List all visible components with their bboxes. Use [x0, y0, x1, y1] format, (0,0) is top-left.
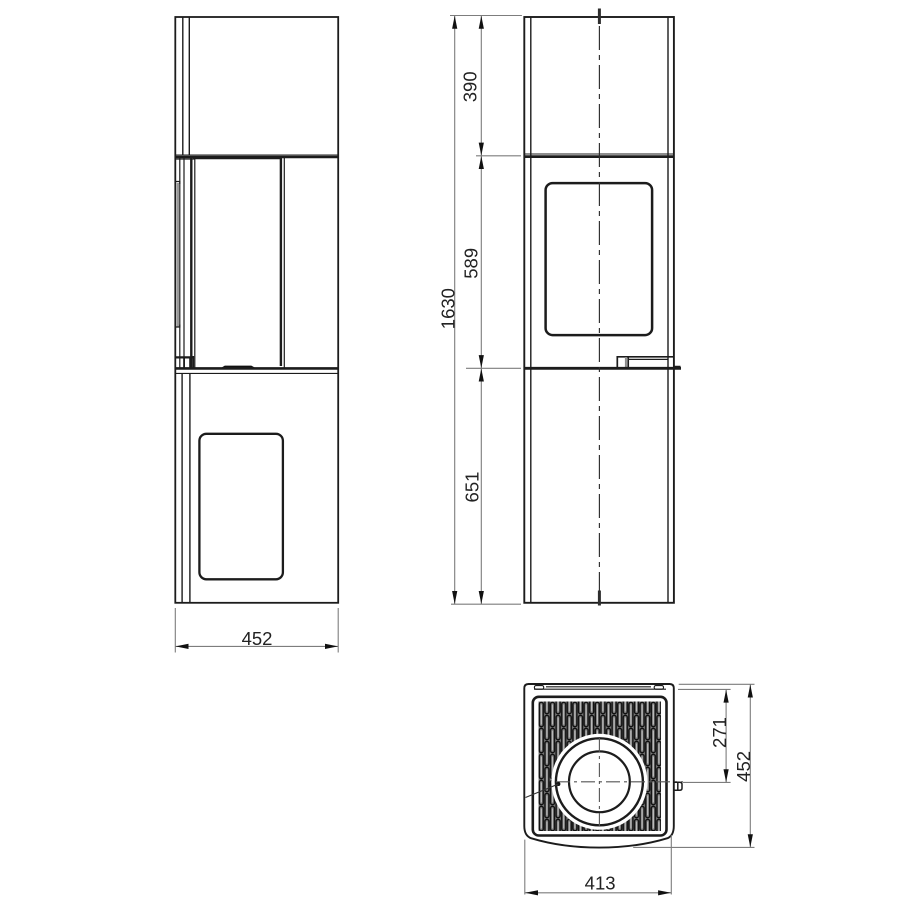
svg-text:413: 413	[585, 873, 616, 894]
svg-text:589: 589	[461, 248, 482, 279]
svg-text:452: 452	[242, 628, 273, 649]
svg-text:651: 651	[462, 472, 483, 503]
svg-text:452: 452	[733, 751, 754, 782]
svg-text:271: 271	[709, 717, 730, 748]
svg-text:1630: 1630	[437, 288, 458, 329]
svg-text:390: 390	[460, 71, 481, 102]
